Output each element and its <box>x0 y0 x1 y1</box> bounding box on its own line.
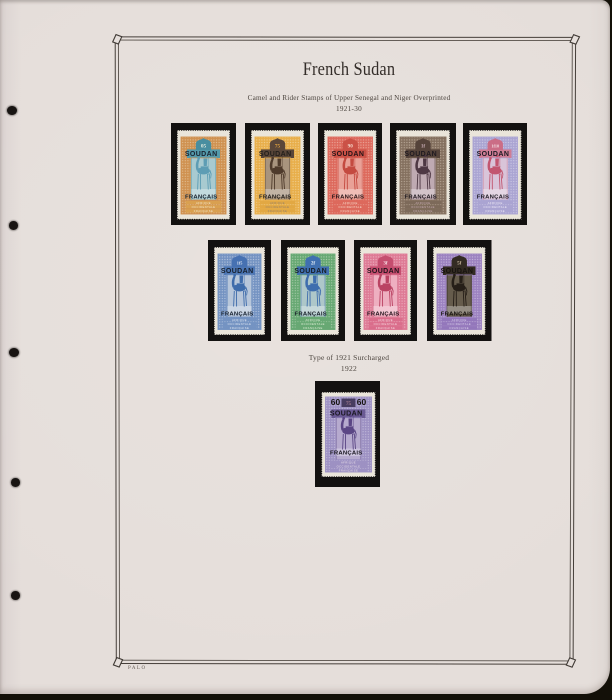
svg-text:AFRIQUE: AFRIQUE <box>452 317 467 321</box>
svg-text:FRANÇAISE: FRANÇAISE <box>338 469 357 473</box>
svg-text:FRANÇAIS: FRANÇAIS <box>476 194 508 200</box>
svg-text:OCCIDENTALE: OCCIDENTALE <box>336 464 360 468</box>
svg-text:1f: 1f <box>420 143 425 149</box>
svg-text:5f: 5f <box>457 260 462 266</box>
svg-text:AFRIQUE: AFRIQUE <box>305 317 320 321</box>
svg-text:1f10: 1f10 <box>491 143 499 148</box>
svg-text:FRANÇAISE: FRANÇAISE <box>340 209 359 213</box>
svg-text:OCCIDENTALE: OCCIDENTALE <box>411 204 435 208</box>
svg-text:FRANÇAIS: FRANÇAIS <box>294 311 326 317</box>
svg-text:1f5: 1f5 <box>237 260 243 265</box>
svg-text:FRANÇAIS: FRANÇAIS <box>367 311 399 317</box>
svg-text:75: 75 <box>346 402 352 407</box>
svg-text:AFRIQUE: AFRIQUE <box>487 200 502 204</box>
svg-text:SOUDAN: SOUDAN <box>259 151 292 158</box>
svg-text:OCCIDENTALE: OCCIDENTALE <box>374 321 398 325</box>
svg-text:OCCIDENTALE: OCCIDENTALE <box>191 204 215 208</box>
svg-text:OCCIDENTALE: OCCIDENTALE <box>338 204 362 208</box>
svg-text:OCCIDENTALE: OCCIDENTALE <box>266 204 290 208</box>
svg-text:AFRIQUE: AFRIQUE <box>378 317 393 321</box>
svg-text:SOUDAN: SOUDAN <box>221 268 254 275</box>
svg-text:75: 75 <box>275 143 281 149</box>
svg-text:FRANÇAIS: FRANÇAIS <box>404 194 436 200</box>
svg-text:AFRIQUE: AFRIQUE <box>270 200 285 204</box>
svg-text:FRANÇAIS: FRANÇAIS <box>441 311 473 317</box>
svg-text:AFRIQUE: AFRIQUE <box>415 200 430 204</box>
svg-text:FRANÇAISE: FRANÇAISE <box>376 326 395 330</box>
svg-text:AFRIQUE: AFRIQUE <box>232 317 247 321</box>
svg-text:SOUDAN: SOUDAN <box>441 268 474 275</box>
svg-text:OCCIDENTALE: OCCIDENTALE <box>447 321 471 325</box>
svg-text:SOUDAN: SOUDAN <box>404 151 437 158</box>
svg-text:FRANÇAISE: FRANÇAISE <box>303 326 322 330</box>
svg-text:SOUDAN: SOUDAN <box>329 411 362 418</box>
svg-text:90: 90 <box>347 143 353 149</box>
svg-text:SOUDAN: SOUDAN <box>367 268 400 275</box>
svg-text:OCCIDENTALE: OCCIDENTALE <box>483 204 507 208</box>
svg-text:OCCIDENTALE: OCCIDENTALE <box>301 321 325 325</box>
svg-text:FRANÇAIS: FRANÇAIS <box>331 194 363 200</box>
svg-text:SOUDAN: SOUDAN <box>331 151 364 158</box>
svg-text:3f: 3f <box>383 260 388 266</box>
svg-text:SOUDAN: SOUDAN <box>476 151 509 158</box>
svg-text:AFRIQUE: AFRIQUE <box>195 200 210 204</box>
svg-text:AFRIQUE: AFRIQUE <box>342 200 357 204</box>
svg-text:60: 60 <box>356 397 366 407</box>
svg-text:FRANÇAISE: FRANÇAISE <box>268 209 287 213</box>
svg-text:FRANÇAIS: FRANÇAIS <box>259 194 291 200</box>
svg-text:SOUDAN: SOUDAN <box>294 268 327 275</box>
svg-text:FRANÇAISE: FRANÇAISE <box>485 209 504 213</box>
svg-text:FRANÇAIS: FRANÇAIS <box>329 451 361 457</box>
svg-text:FRANÇAIS: FRANÇAIS <box>184 194 216 200</box>
svg-text:05: 05 <box>200 143 206 149</box>
svg-text:FRANÇAISE: FRANÇAISE <box>413 209 432 213</box>
svg-text:FRANÇAISE: FRANÇAISE <box>193 209 212 213</box>
svg-text:SOUDAN: SOUDAN <box>184 151 217 158</box>
svg-text:AFRIQUE: AFRIQUE <box>340 460 355 464</box>
svg-text:OCCIDENTALE: OCCIDENTALE <box>228 321 252 325</box>
svg-text:60: 60 <box>330 397 340 407</box>
svg-text:FRANÇAIS: FRANÇAIS <box>221 311 253 317</box>
svg-text:FRANÇAISE: FRANÇAISE <box>230 326 249 330</box>
svg-text:2f: 2f <box>310 260 315 266</box>
svg-text:FRANÇAISE: FRANÇAISE <box>450 326 469 330</box>
